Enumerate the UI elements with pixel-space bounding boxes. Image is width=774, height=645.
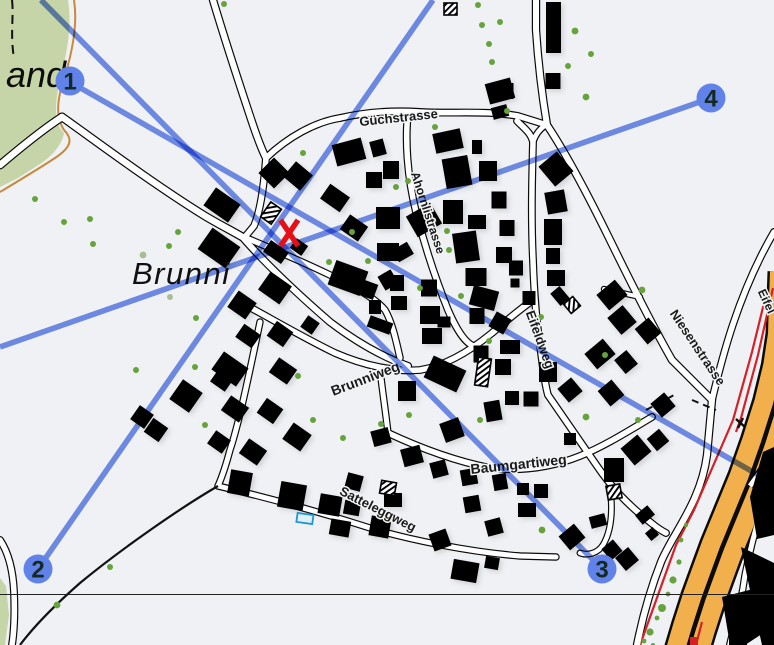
svg-text:3: 3 [595, 557, 608, 584]
svg-text:1: 1 [63, 69, 76, 96]
svg-text:4: 4 [704, 86, 718, 113]
svg-text:2: 2 [31, 557, 44, 584]
